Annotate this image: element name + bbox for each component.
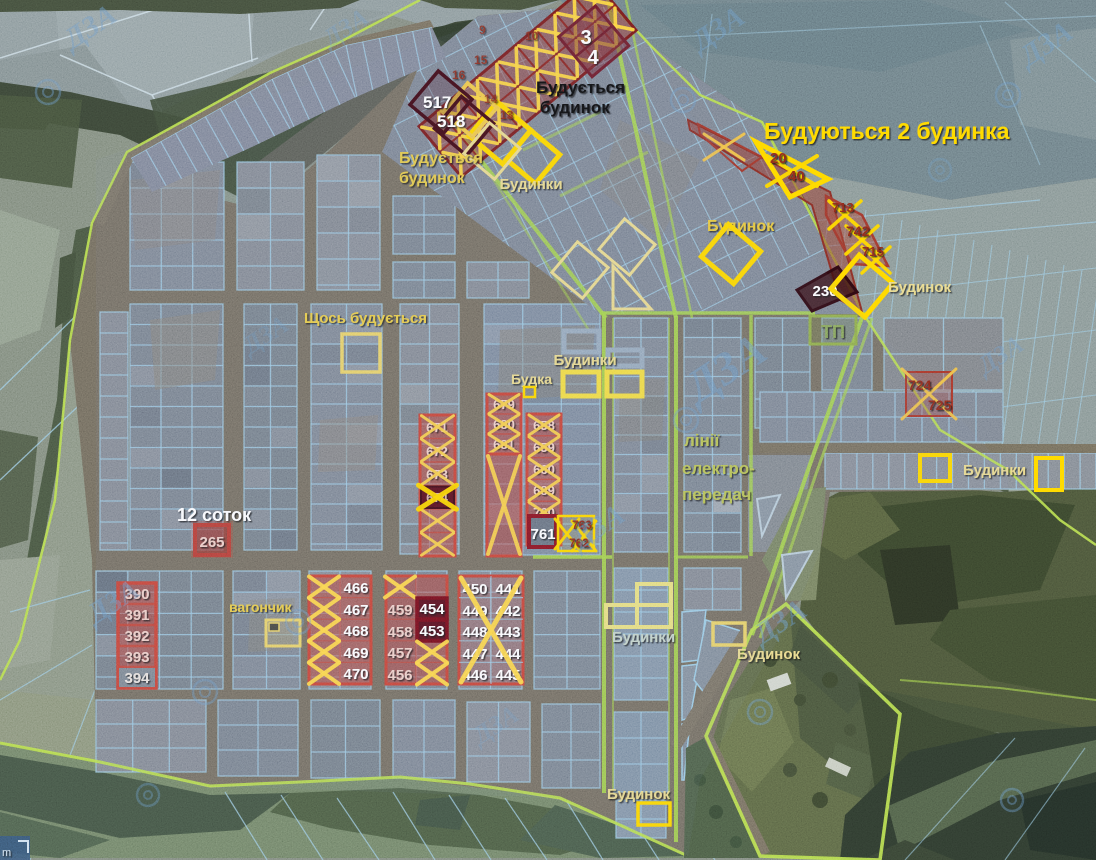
svg-text:713: 713 <box>832 200 854 215</box>
svg-text:40: 40 <box>788 168 805 185</box>
svg-text:m: m <box>2 847 11 859</box>
svg-text:Будинок: Будинок <box>888 279 952 296</box>
svg-text:Будуються 2 будинка: Будуються 2 будинка <box>764 118 1010 144</box>
svg-text:20: 20 <box>770 150 787 167</box>
svg-text:742: 742 <box>846 223 870 239</box>
